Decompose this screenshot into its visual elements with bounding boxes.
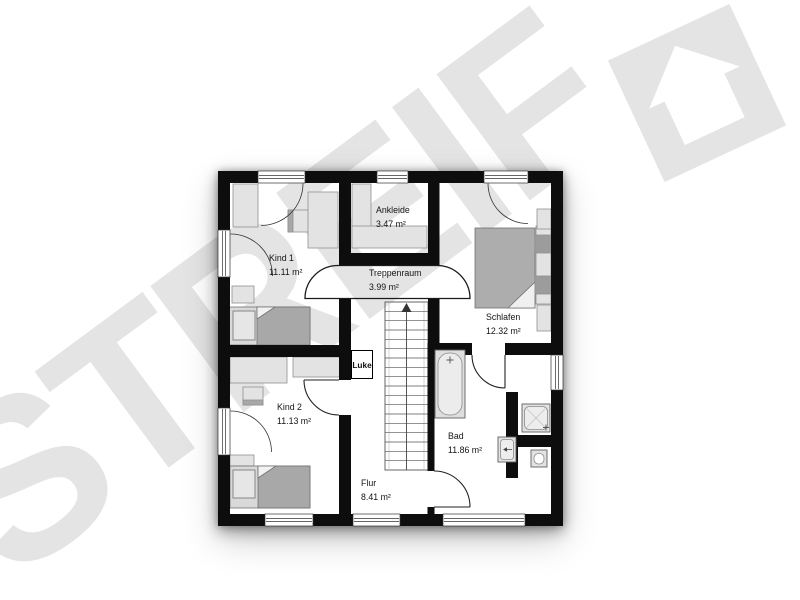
window-kind1-top [258,171,305,183]
table-kind2 [243,387,263,405]
room-label-flur: Flur 8.41 m² [361,476,391,504]
toilet-icon [531,450,547,467]
bed-schlafen [475,228,535,308]
window-bad-right [551,355,563,390]
stair-direction-arrow [402,303,412,312]
bed-kind1 [229,307,310,345]
room-label-treppenraum: Treppenraum 3.99 m² [369,266,421,294]
luke-hatch-label: Luke [351,350,373,379]
desk-kind2 [230,357,287,383]
door-schlafen-bad [472,343,505,388]
room-label-schlafen: Schlafen 12.32 m² [486,310,521,338]
room-name: Flur [361,476,391,490]
table-kind1 [288,210,310,232]
shelf-kind1 [232,286,254,303]
wardrobe-kind1-right [308,192,338,248]
window-ankleide-top [377,171,408,183]
room-name: Bad [448,429,482,443]
nightstand-schlafen-1 [535,235,551,253]
room-name: Treppenraum [369,266,421,280]
room-label-kind1: Kind 1 11.11 m² [269,251,302,279]
room-name: Kind 2 [277,400,311,414]
room-name: Schlafen [486,310,521,324]
room-label-kind2: Kind 2 11.13 m² [277,400,311,428]
staircase [385,302,428,470]
room-name: Ankleide [376,203,410,217]
door-flur-bad [428,471,471,507]
room-label-ankleide: Ankleide 3.47 m² [376,203,410,231]
room-area: 3.47 m² [376,217,410,231]
shower-icon [522,404,550,432]
window-kind2-bottom [265,514,313,526]
floorplan-page: STREIF [0,0,800,600]
wardrobe-kind2 [293,357,340,377]
room-area: 11.13 m² [277,414,311,428]
window-bad-bottom [443,514,525,526]
room-area: 8.41 m² [361,490,391,504]
shelf-kind2 [230,455,254,466]
floorplan-drawing [0,0,800,600]
room-area: 11.86 m² [448,443,482,457]
window-kind1-left [218,230,230,277]
bathtub-icon [435,350,465,418]
window-flur-bottom [353,514,400,526]
sink-icon [498,437,516,462]
window-kind2-left [218,408,230,455]
wardrobe-kind1-left [233,184,258,227]
room-name: Kind 1 [269,251,302,265]
window-schlafen-top [484,171,528,183]
room-area: 12.32 m² [486,324,521,338]
luke-text: Luke [352,360,371,370]
nightstand-schlafen-2 [535,276,551,294]
room-area: 3.99 m² [369,280,421,294]
room-label-bad: Bad 11.86 m² [448,429,482,457]
room-area: 11.11 m² [269,265,302,279]
bed-kind2 [230,466,310,508]
